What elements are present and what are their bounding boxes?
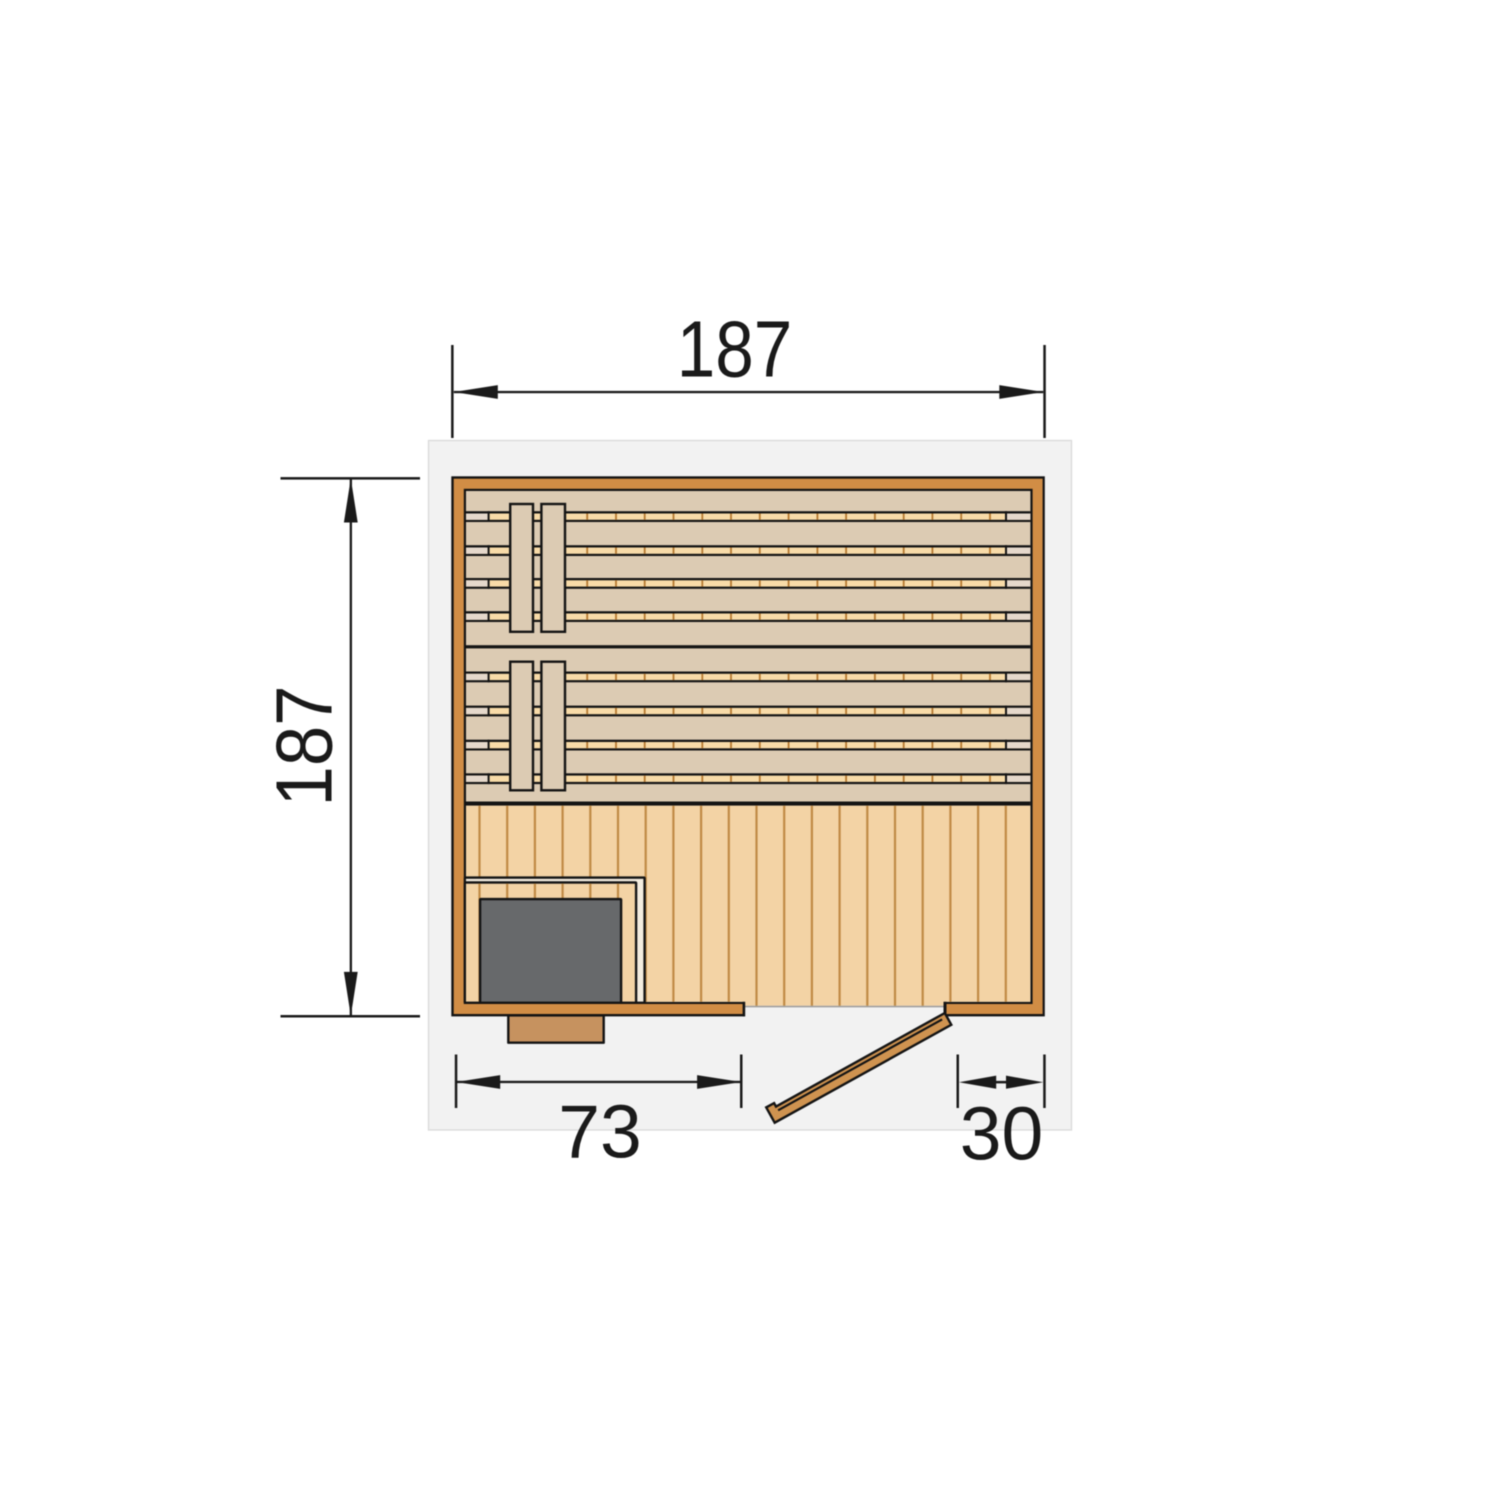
svg-text:187: 187 [260, 685, 349, 806]
svg-text:30: 30 [960, 1092, 1044, 1176]
svg-text:187: 187 [677, 304, 793, 394]
svg-text:73: 73 [558, 1090, 642, 1174]
